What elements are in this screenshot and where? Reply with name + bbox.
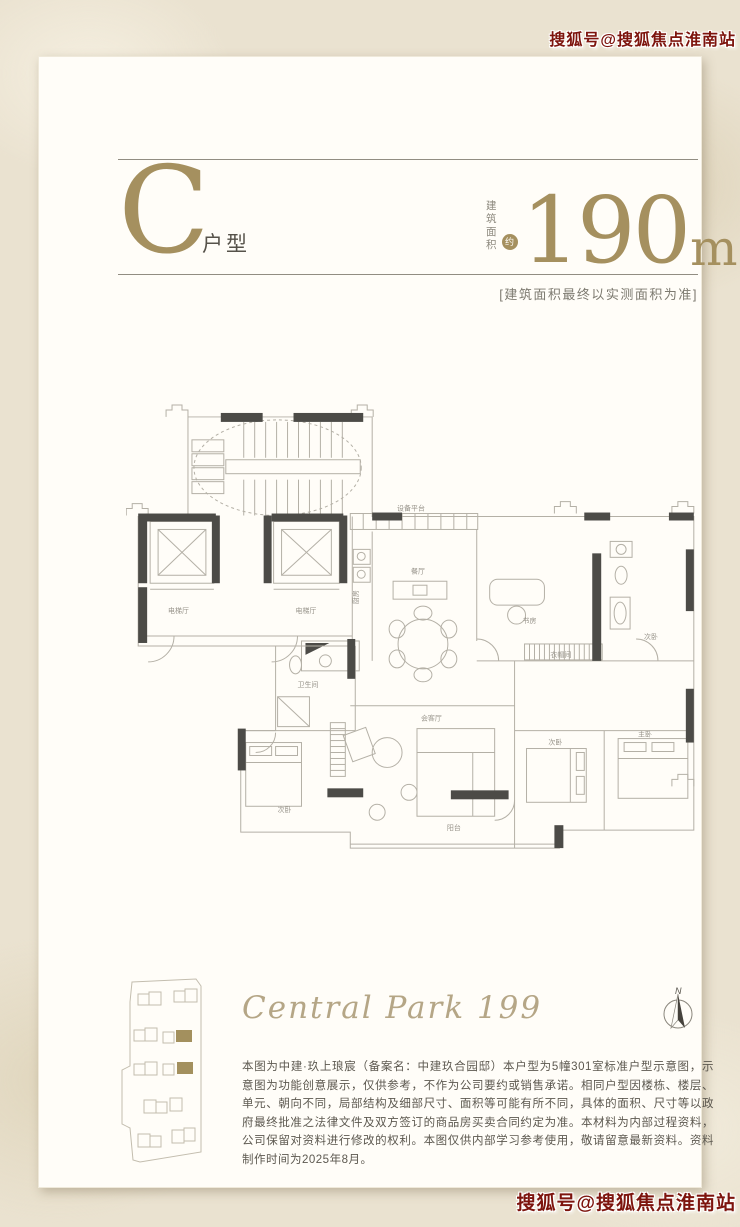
room-label: 厨房 xyxy=(351,590,360,604)
area-label: 建筑 面积 xyxy=(486,200,498,252)
bay-ornament xyxy=(554,502,576,514)
room-label: 设备平台 xyxy=(397,504,425,513)
area-value: 190 xyxy=(522,194,689,268)
door-arcs xyxy=(148,636,658,820)
elevator-shaft-left xyxy=(150,521,214,589)
room-label: 餐厅 xyxy=(411,566,425,575)
bed-center xyxy=(527,749,587,803)
disclaimer-text: 本图为中建·玖上琅宸（备案名：中建玖合园邸）本户型为5幢301室标准户型示意图，… xyxy=(242,1058,714,1169)
room-label: 卫生间 xyxy=(298,680,319,689)
room-label: 电梯厅 xyxy=(168,606,189,615)
stair-shelves xyxy=(192,440,224,494)
floorplan-card: C 户型 建筑 面积 约 190 m 2 [建筑面积最终以实测面积为准] xyxy=(38,56,702,1188)
unit-type-label: 户型 xyxy=(202,228,250,258)
area-label-line1: 建筑 xyxy=(486,200,498,226)
floorplan-drawing: 电梯厅 电梯厅 设备平台 厨房 餐厅 书房 次卧 会客厅 次卧 主卧 次卧 阳台… xyxy=(126,402,704,870)
study-desk xyxy=(490,579,545,605)
bay-ornament xyxy=(166,405,188,417)
room-label: 次卧 xyxy=(548,738,562,747)
area-unit: m xyxy=(690,228,737,268)
foyer-cabinet-detail xyxy=(305,643,329,655)
project-logo: Central Park 199 xyxy=(242,990,542,1026)
room-label: 主卧 xyxy=(638,730,652,739)
wall-segments xyxy=(138,413,694,848)
equipment-platform xyxy=(350,514,477,530)
dining-table xyxy=(389,606,457,682)
room-label: 书房 xyxy=(523,616,537,625)
living-sofa xyxy=(343,727,494,820)
bathroom-fixtures-right xyxy=(610,541,632,629)
dining-island xyxy=(393,581,447,599)
compass: N xyxy=(658,982,700,1040)
room-label: 次卧 xyxy=(278,805,292,814)
compass-needle-dark xyxy=(678,994,685,1028)
room-label: 衣帽间 xyxy=(550,650,571,659)
bed-master xyxy=(618,739,688,799)
approx-badge: 约 xyxy=(502,234,518,250)
compass-north-label: N xyxy=(675,986,682,996)
unit-letter: C xyxy=(118,152,210,272)
compass-needle-light xyxy=(671,994,678,1028)
watermark-bottom: 搜狐号@搜狐焦点淮南站 xyxy=(516,1188,736,1215)
area-label-line2: 面积 xyxy=(486,226,498,252)
bed-left xyxy=(246,743,302,807)
room-label: 阳台 xyxy=(447,823,461,832)
stair-landing xyxy=(226,460,360,474)
site-plan xyxy=(100,942,214,1176)
room-label: 会客厅 xyxy=(421,714,442,723)
elevator-shaft-right xyxy=(274,521,340,589)
room-label: 电梯厅 xyxy=(296,606,317,615)
watermark-top: 搜狐号@搜狐焦点淮南站 xyxy=(549,26,736,50)
area-note: [建筑面积最终以实测面积为准] xyxy=(118,284,698,303)
area-block: 建筑 面积 约 190 m 2 xyxy=(486,172,740,268)
bay-ornament xyxy=(672,774,694,786)
room-label: 次卧 xyxy=(644,632,658,641)
highlighted-buildings xyxy=(176,1030,193,1074)
bay-ornament xyxy=(672,502,694,514)
